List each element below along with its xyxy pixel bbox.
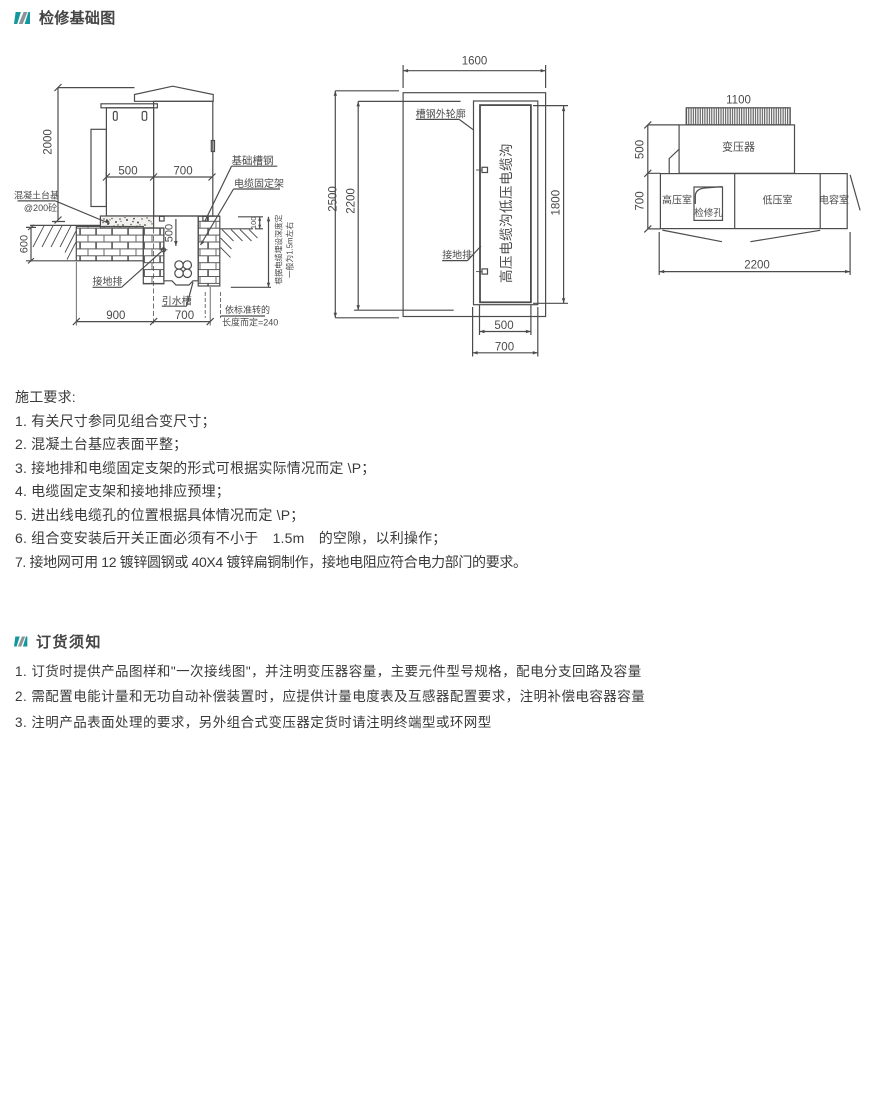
svg-text:1600: 1600 <box>462 56 488 68</box>
svg-text:根据电缆埋设深度定: 根据电缆埋设深度定 <box>273 214 283 284</box>
svg-text:500: 500 <box>163 224 175 242</box>
svg-text:基础槽钢: 基础槽钢 <box>232 154 274 167</box>
svg-text:依标准转的: 依标准转的 <box>225 304 270 315</box>
svg-text:高压室: 高压室 <box>662 193 692 206</box>
svg-text:1800: 1800 <box>551 190 563 216</box>
svg-text:500: 500 <box>494 320 513 332</box>
svg-text:700: 700 <box>173 166 192 178</box>
svg-text:900: 900 <box>106 310 125 322</box>
svg-text:一般为1.5m左右: 一般为1.5m左右 <box>284 222 294 279</box>
svg-text:长度而定=240: 长度而定=240 <box>222 317 278 328</box>
svg-text:2000: 2000 <box>43 129 55 155</box>
svg-text:500: 500 <box>635 140 647 159</box>
svg-text:700: 700 <box>635 191 647 210</box>
svg-text:2200: 2200 <box>744 259 770 271</box>
svg-text:高压电缆沟低压电缆沟: 高压电缆沟低压电缆沟 <box>498 143 514 283</box>
svg-text:@200砼: @200砼 <box>24 202 57 213</box>
svg-text:检修孔: 检修孔 <box>694 207 723 219</box>
svg-text:低压室: 低压室 <box>763 194 793 207</box>
svg-text:1100: 1100 <box>726 95 751 107</box>
svg-text:2200: 2200 <box>346 188 358 214</box>
svg-text:电缆固定架: 电缆固定架 <box>234 177 284 190</box>
svg-text:700: 700 <box>175 310 194 322</box>
svg-text:600: 600 <box>18 235 30 253</box>
svg-text:2500: 2500 <box>328 186 340 212</box>
svg-text:电容室: 电容室 <box>819 194 849 207</box>
svg-text:500: 500 <box>118 166 137 178</box>
svg-text:100: 100 <box>249 217 258 230</box>
svg-text:接地排: 接地排 <box>93 275 123 288</box>
svg-text:混凝土台基: 混凝土台基 <box>14 190 59 201</box>
svg-text:槽钢外轮廓: 槽钢外轮廓 <box>416 107 466 120</box>
svg-text:变压器: 变压器 <box>722 140 755 154</box>
svg-text:700: 700 <box>495 341 514 353</box>
